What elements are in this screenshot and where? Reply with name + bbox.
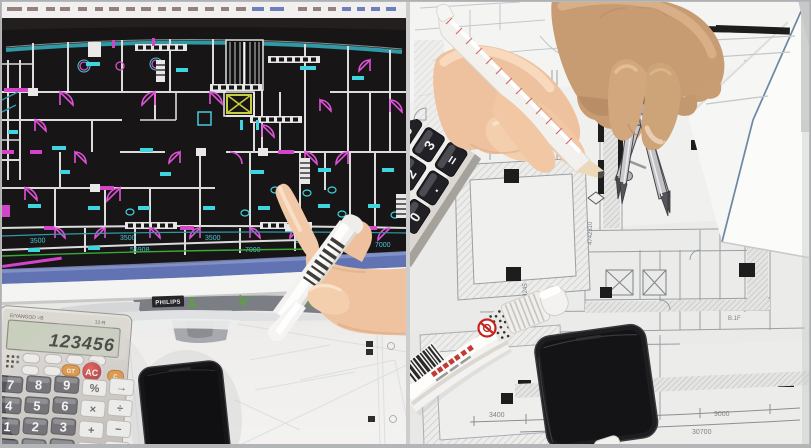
svg-text:3500: 3500 — [120, 235, 136, 242]
svg-text:3500: 3500 — [205, 235, 221, 242]
svg-text:PHILIPS: PHILIPS — [155, 300, 181, 307]
svg-text:56908: 56908 — [130, 247, 150, 254]
svg-text:9000: 9000 — [714, 411, 730, 418]
svg-text:4742310: 4742310 — [588, 221, 594, 245]
svg-text:7000: 7000 — [375, 242, 391, 249]
svg-text:3400: 3400 — [489, 412, 505, 419]
svg-text:3500: 3500 — [30, 237, 46, 245]
svg-text:30700: 30700 — [692, 429, 712, 436]
svg-text:B.1F: B.1F — [728, 316, 741, 322]
